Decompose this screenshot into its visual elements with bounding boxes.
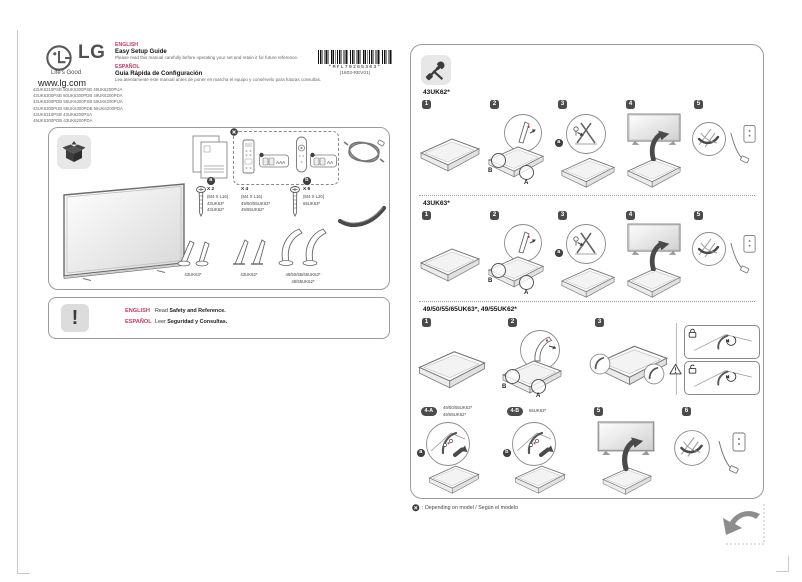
position-a-circle [519,165,534,180]
step-badge: 4 [626,211,635,220]
step-illustration-attach-legs: B A [487,113,553,191]
step-number: 4 [629,101,633,107]
position-a-circle [531,379,546,394]
section-divider [419,195,755,196]
stand-feet-43uk63-icon [175,234,213,270]
page-turn-icon [716,498,770,552]
screw-a-size: (M4 X L16) [207,194,228,200]
step-illustration-rotate-feet [589,331,671,397]
model-line: 49UK6300PDB 43UK6200PDA [33,118,123,124]
warning-triangle-icon [669,363,682,375]
step-illustration-fasten-screws: a [555,223,621,299]
screw-b-badge-label: b [305,178,308,183]
battery-aa-label: AA [327,160,334,165]
position-b-label: B [488,278,492,284]
screw-b-qty: X 6 [303,187,310,192]
step-number: 6 [685,408,689,414]
screw-a-icon [195,186,207,218]
step-illustration-attach-legs: B A [487,223,553,299]
step-badge-4a: 4-A [421,407,437,416]
step-number: 5 [697,212,701,218]
safety-doc-en: Safety and Reference. [169,308,225,314]
screw-a-marker: a [417,449,425,457]
position-b-circle [491,263,506,278]
step-illustration-raise-tv [589,421,669,493]
barcode [318,50,392,64]
step-badge: 3 [558,211,567,220]
position-b-label: B [502,384,506,390]
step-badge: 1 [422,100,431,109]
position-a-circle [519,275,534,290]
model-list: 43UK6310PSB 50UK6300PSB 49UK6200PUA 43UK… [33,87,123,124]
guide-note-en: Please read this manual carefully before… [115,55,298,60]
stand-label-49-55uk62: 49/55UK62* [271,279,335,285]
screw-b-marker-label: b [505,450,508,455]
step-illustration-tv-facedown [419,115,483,191]
position-b-circle [505,369,520,384]
remote-icon [242,139,256,175]
note-marker-icon [412,504,420,512]
battery-aaa-icon: AAA [259,152,289,168]
screw-a-model1: 43UK63* [207,201,224,207]
position-b-label: B [488,168,492,174]
step-number: 5 [597,408,601,414]
step-badge: 4 [626,100,635,109]
remotes-box: AAA AA [233,131,339,185]
model-line: 43UK6300PDB 55UK6300PSB 55UK6200PUA [33,99,123,105]
section-divider [419,301,755,302]
step-number: 3 [561,212,565,218]
screw-a-qty: X 2 [207,187,214,192]
screw-mid-model2: 49/55UK62* [241,207,264,213]
step-illustration-cable-management [673,421,759,493]
unboxing-icon [57,135,91,169]
page-edge-mark [17,573,30,574]
screw-b-icon [289,186,301,218]
screw-a-marker: a [555,249,563,257]
screw-b-marker: b [503,449,511,457]
step-illustration-fasten-screws: a [555,113,621,191]
position-a-label: A [524,290,528,296]
position-a-label: A [536,393,540,399]
step-badge: 6 [682,407,691,416]
stand-feet-43uk62-icon [231,234,269,270]
stand-label-49-65uk63: 49/50/55/65UK63* [271,272,335,278]
step-number: 3 [561,101,565,107]
step-number: 1 [425,101,429,107]
page-edge-mark [776,571,789,572]
step-badge: 1 [422,211,431,220]
step-number: 3 [598,319,602,325]
safety-read-es: Leer [155,319,166,325]
footnote-text: : Depending on model / Según el modelo [422,505,518,511]
step-number: 2 [511,319,515,325]
screw-b-badge: b [303,177,311,185]
step-number: 1 [425,319,429,325]
warning-exclamation-icon: ! [61,304,89,332]
barcode-revision: (1803-REV01) [308,71,402,76]
stand-label-43uk63: 43UK63* [167,272,219,278]
screw-a-marker-label: a [557,140,560,145]
stand-label-43uk62: 43UK62* [223,272,275,278]
position-a-label: A [524,180,528,186]
step-illustration-cable-management [691,223,757,299]
step-number: 4-B [511,409,520,414]
step-badge-4b: 4-B [507,407,523,416]
model-line: 43UK6300PUB 65UK6300PDB 55UK6200PDA [33,106,123,112]
step-number: 1 [425,212,429,218]
step-number: 4-A [425,409,434,414]
step-illustration-raise-tv [623,113,689,191]
step-illustration-screw-stand-b: b [503,421,583,493]
step-badge: 1 [422,318,431,327]
step-badge: 3 [558,100,567,109]
sidebar-divider [676,323,677,395]
manuals-illustration [191,134,231,182]
section2-title: 43UK63* [423,200,450,207]
safety-read-en: Read [155,308,168,314]
cable-holder-icon [337,204,387,232]
lock-correct-panel [684,325,760,359]
screw-b-model1: 65UK63* [303,201,320,207]
screw-mid-qty: X 4 [241,187,248,192]
lg-logo-icon [45,44,73,72]
step-number: 5 [697,101,701,107]
step-4a-model1: 49/50/55UK63* [443,405,472,411]
section1-title: 43UK62* [423,89,450,96]
guide-title-en: Easy Setup Guide [115,48,167,55]
battery-aa-icon: AA [310,152,338,168]
guide-note-es: Lea atentamente este manual antes de pon… [115,77,321,82]
power-cord-icon [343,136,385,168]
step-badge: 5 [594,407,603,416]
step-badge: 5 [694,211,703,220]
screw-a-badge: a [207,177,215,185]
screw-mid-model1: 49/50/55UK63* [241,201,270,207]
page: LG Life's Good www.lg.com ENGLISH Easy S… [0,0,802,582]
barcode-text: *MFL70265303* [308,65,402,70]
screw-a-model2: 43UK62* [207,207,224,213]
step-badge: 2 [490,211,499,220]
step-4b-model1: 65UK63* [529,408,546,414]
step-badge: 2 [508,318,517,327]
page-edge-mark [788,556,789,572]
screw-a-marker-label: a [419,450,422,455]
step-number: 2 [493,101,497,107]
safety-lang-en: ENGLISH [125,308,150,314]
step-badge: 2 [490,100,499,109]
tools-icon [421,55,451,85]
step-4a-model2: 49/55UK62* [443,412,466,418]
position-b-circle [491,153,506,168]
step-illustration-raise-tv [623,223,689,299]
brand-tagline: Life's Good [51,70,81,76]
safety-lang-es: ESPAÑOL [125,319,152,325]
screw-mid-size: (M4 X L16) [241,194,262,200]
note-marker-icon [230,128,238,136]
foot-rotate-illustration [690,330,756,356]
step-illustration-tv-facedown [417,333,495,397]
guide-title-es: Guía Rápida de Configuración [115,70,202,77]
battery-aaa-label: AAA [276,160,286,165]
step-illustration-attach-neck: B A [501,329,585,399]
step-illustration-screw-stand-a: a [417,421,497,493]
screw-a-marker: a [555,139,563,147]
section3-title: 49/50/55/65UK63*, 49/55UK62* [423,306,517,313]
step-badge: 5 [694,100,703,109]
step-illustration-tv-facedown [419,225,483,299]
safety-box: ! ENGLISH Read Safety and Reference. ESP… [48,297,390,339]
magic-remote-icon [295,136,308,174]
step-badge: 3 [595,318,604,327]
step-number: 2 [493,212,497,218]
screw-b-size: (M4 X L20) [303,194,324,200]
brand-text: LG [78,42,105,64]
step-number: 4 [629,212,633,218]
stand-feet-49-65-icon [275,226,331,270]
tv-illustration [61,180,187,282]
safety-doc-es: Seguridad y Consultas. [167,319,227,325]
step-illustration-cable-management [691,113,757,191]
assembly-box: 43UK62* 1 2 3 4 5 B A a [410,44,764,499]
foot-rotate-illustration [690,366,756,392]
screw-a-badge-label: a [209,178,212,183]
lock-incorrect-panel [684,361,760,395]
accessories-box: AAA AA a [48,127,390,290]
screw-a-marker-label: a [557,250,560,255]
